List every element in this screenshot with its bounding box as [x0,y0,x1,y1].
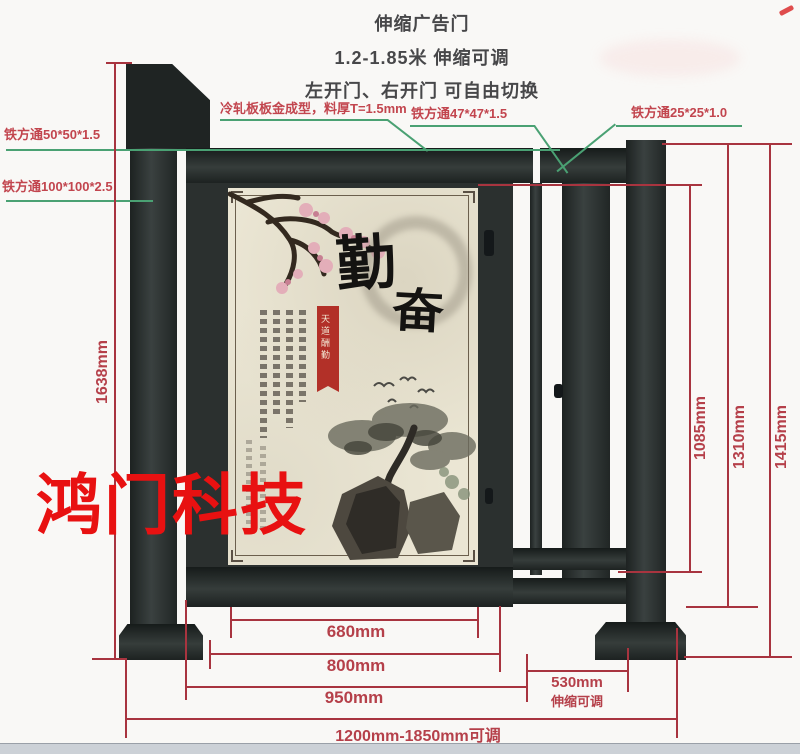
dim-tick [92,658,126,660]
dim-label-1085: 1085mm [692,383,710,473]
dim-line-1415 [769,143,771,658]
dim-tick [125,658,127,738]
dim-line-total-range [126,718,677,720]
dim-label-530-note: 伸缩可调 [527,691,627,710]
dim-line-1310 [727,143,729,608]
dim-line-800 [209,653,500,655]
callout-line-tube47 [410,125,535,127]
extension-latch [554,384,563,398]
dim-ext-ground [684,656,792,658]
dim-tick [209,640,211,669]
dim-label-680: 680mm [306,622,406,642]
dim-line-1085 [689,184,691,573]
dim-tick [627,648,629,692]
dim-line-530 [528,670,628,672]
callout-line-tube50 [6,149,560,151]
calligraphy-fen: 奋 [391,287,445,336]
right-post-base [595,622,686,660]
callout-line-cold-rolled [220,119,388,121]
poster-text-column [260,310,267,438]
gate-top-rail [186,148,533,183]
dim-ext-base [686,606,758,608]
callout-tube25: 铁方通25*25*1.0 [631,105,727,120]
red-artifact-mark [779,5,795,16]
title-line1: 伸缩广告门 [212,10,632,36]
watermark-text: 鸿门科技 [36,452,308,548]
seal-banner-text: 天道酬勤 [319,314,332,362]
extension-bar-thin [530,183,542,575]
motor-housing [126,64,210,150]
left-post-base [119,624,203,660]
gate-lock-handle [484,230,494,256]
callout-tube50: 铁方通50*50*1.5 [4,127,100,142]
title-line3: 左开门、右开门 可自由切换 [212,77,632,103]
gate-bottom-rail [186,567,513,607]
poster-corner-ornament [231,550,243,562]
dim-tick [477,607,479,638]
seal-banner: 天道酬勤 [317,306,339,392]
callout-line-tube25 [616,125,742,127]
dim-tick [230,607,232,638]
poster-corner-ornament [463,191,475,203]
callout-tube100: 铁方通100*100*2.5 [2,179,113,194]
poster-text-column [273,310,280,414]
dim-label-1415: 1415mm [773,392,791,482]
extension-bottom-rail [513,578,626,604]
right-post [626,140,666,627]
ink-landscape-art [302,398,478,565]
dim-tick [499,606,501,672]
callout-line-tube100 [6,200,153,202]
dim-label-1310: 1310mm [731,392,749,482]
callout-cold-rolled: 冷轧板板金成型，料厚T=1.5mm [220,101,407,116]
product-diagram: 伸缩广告门 1.2-1.85米 伸缩可调 左开门、右开门 可自由切换 [0,0,800,754]
scan-smudge [600,40,740,76]
dim-line-680 [230,619,478,621]
calligraphy-qin: 勤 [334,232,398,296]
dim-tick [676,628,678,738]
dim-tick [106,62,132,64]
footer-strip [0,743,800,754]
dim-label-950: 950mm [304,688,404,708]
callout-leader-cold-rolled [387,119,429,152]
dim-label-800: 800mm [306,656,406,676]
dim-tick [185,600,187,700]
extension-bar-wide [562,183,610,603]
dim-label-left-total: 1638mm [94,327,112,417]
dim-ext-upper [478,184,702,186]
poster-text-column [299,310,306,402]
dim-line-left-total [114,63,116,660]
dim-label-530: 530mm [537,674,617,691]
poster-text-column [286,310,293,428]
extension-mid-rail [513,548,626,570]
gate-lower-latch [485,488,493,504]
callout-tube47: 铁方通47*47*1.5 [411,106,507,121]
left-post [130,148,177,627]
title-line2: 1.2-1.85米 伸缩可调 [212,44,632,70]
